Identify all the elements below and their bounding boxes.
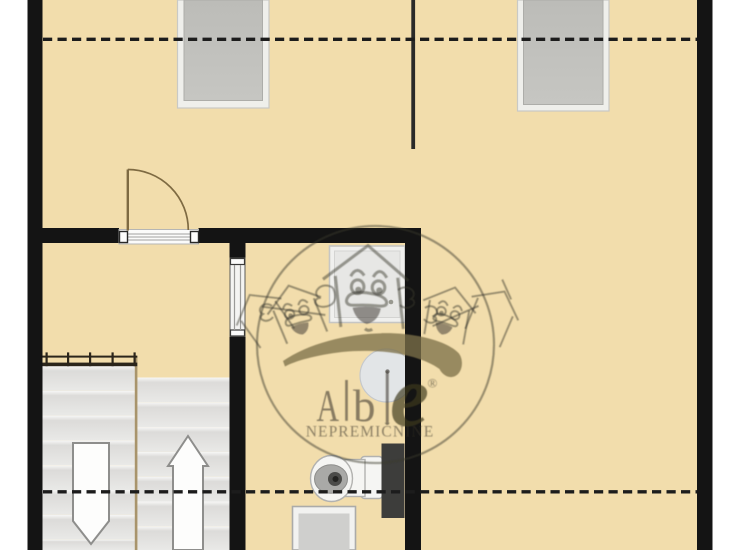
- svg-text:NEPREMIČNINE: NEPREMIČNINE: [306, 424, 435, 441]
